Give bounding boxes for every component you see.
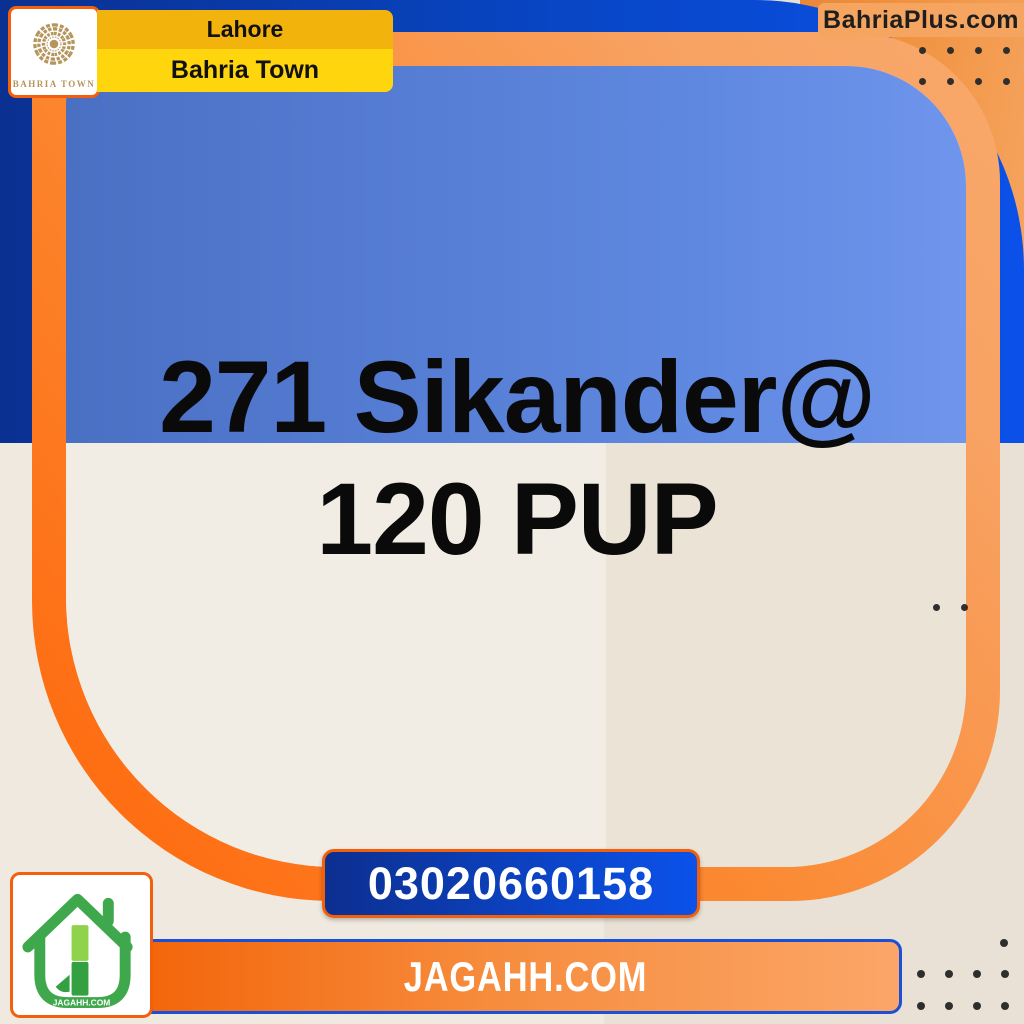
dot <box>933 604 940 611</box>
dot <box>1003 47 1010 54</box>
location-city-band: Lahore <box>97 10 393 49</box>
dot <box>1001 1002 1009 1010</box>
listing-poster: 271 Sikander@ 120 PUP <box>0 0 1024 1024</box>
dot <box>945 970 953 978</box>
dot <box>919 47 926 54</box>
phone-number-badge: 03020660158 <box>322 849 700 918</box>
listing-title: 271 Sikander@ 120 PUP <box>66 336 968 580</box>
dot <box>919 78 926 85</box>
listing-title-line2: 120 PUP <box>66 458 968 580</box>
dot <box>947 47 954 54</box>
location-community-band: Bahria Town <box>97 49 393 92</box>
location-banner: Lahore Bahria Town <box>97 10 393 92</box>
dot <box>1001 970 1009 978</box>
dot <box>1000 939 1008 947</box>
website-banner-text: JAGAHH.COM <box>404 953 648 1001</box>
listing-title-line1: 271 Sikander@ <box>66 336 968 458</box>
dot <box>945 1002 953 1010</box>
bahria-town-emblem-icon <box>21 11 87 77</box>
dot <box>917 1002 925 1010</box>
bahria-town-logo: BAHRIA TOWN <box>8 6 100 98</box>
house-icon: JAGAHH.COM <box>12 875 151 1015</box>
bahriaplus-site-badge: BahriaPlus.com <box>818 3 1024 37</box>
dot <box>947 78 954 85</box>
jagahh-logo-label: JAGAHH.COM <box>53 998 111 1008</box>
dot <box>973 1002 981 1010</box>
dot <box>961 604 968 611</box>
website-banner: JAGAHH.COM <box>150 939 902 1014</box>
bahria-town-logo-label: BAHRIA TOWN <box>11 79 97 89</box>
dot <box>917 970 925 978</box>
jagahh-logo: JAGAHH.COM <box>10 872 153 1018</box>
dot <box>973 970 981 978</box>
dot <box>1003 78 1010 85</box>
dot <box>975 78 982 85</box>
dot <box>975 47 982 54</box>
